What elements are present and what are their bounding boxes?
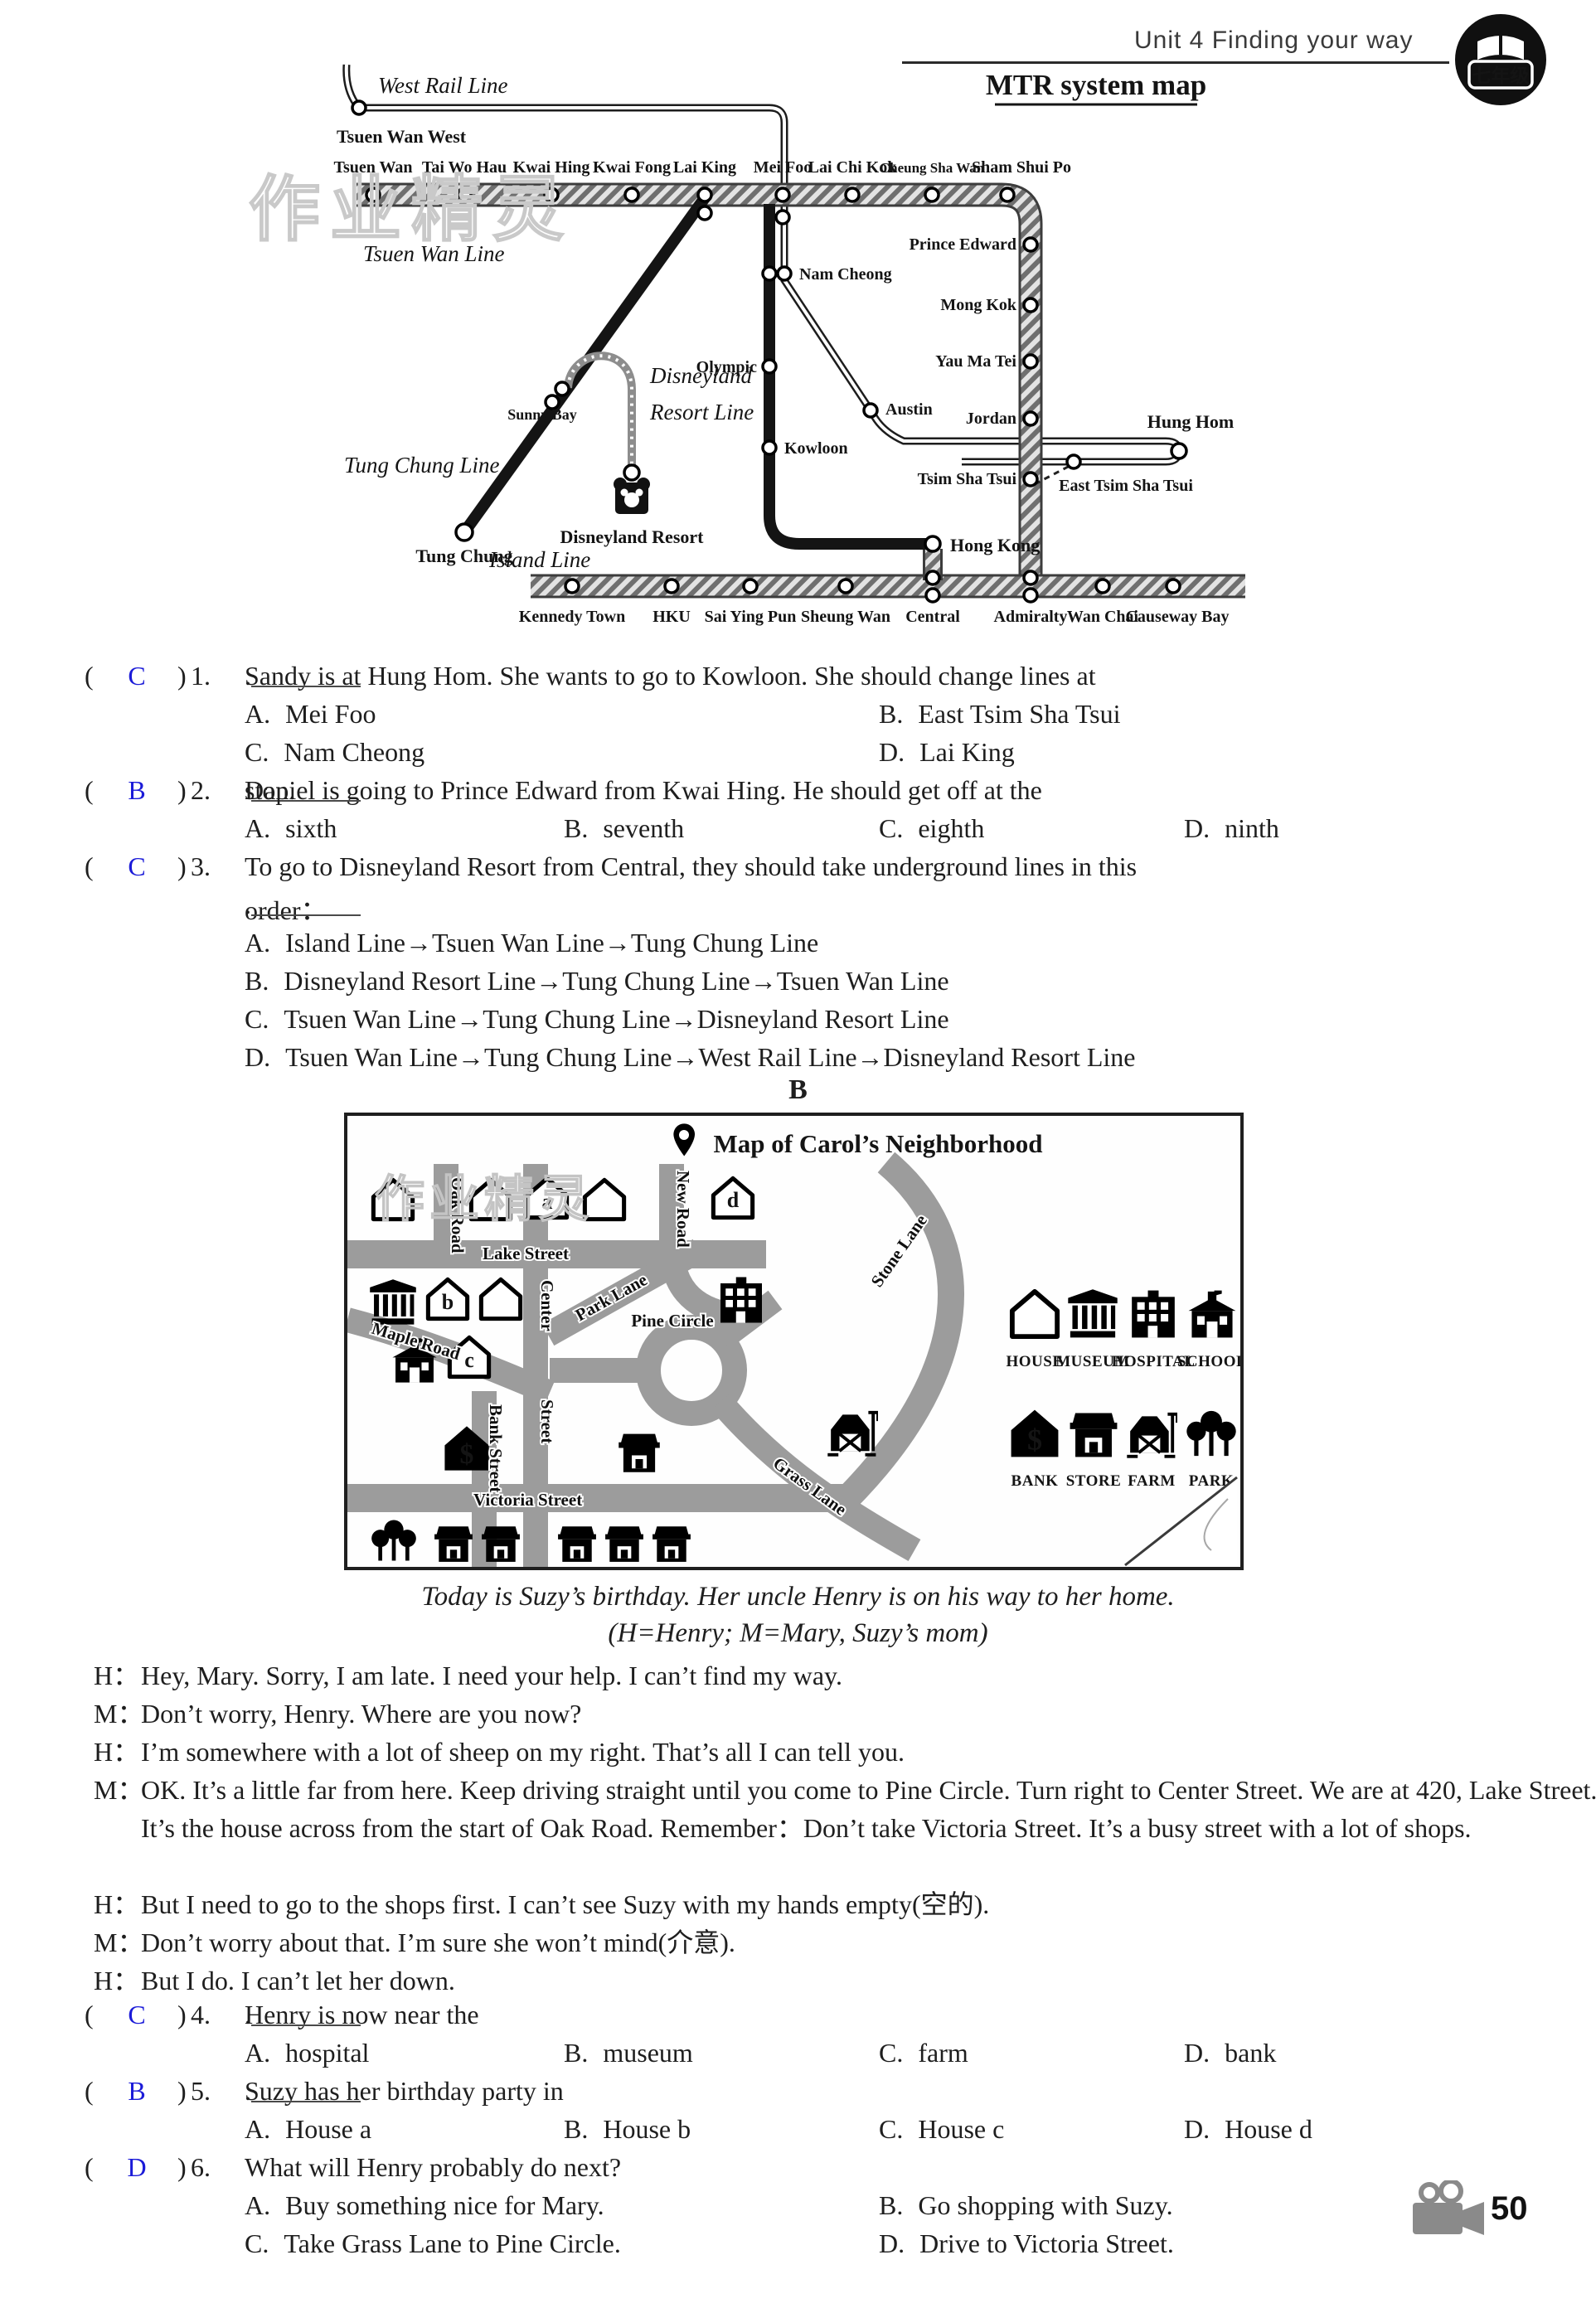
station-label: Mong Kok xyxy=(940,296,1017,314)
street-label: Victoria Street xyxy=(473,1490,582,1510)
station-label: Kwai Fong xyxy=(593,158,671,177)
station-label: Causeway Bay xyxy=(1125,608,1229,626)
street-label: Center xyxy=(537,1280,557,1331)
question-1-options: C.Nam Cheong D.Lai King xyxy=(0,737,1596,775)
house-icon xyxy=(471,1180,510,1219)
station-label: Kwai Hing xyxy=(513,158,590,177)
station-label: Kennedy Town xyxy=(519,608,625,626)
question-1-options: A.Mei Foo B.East Tsim Sha Tsui xyxy=(0,699,1596,737)
school-icon xyxy=(1189,1291,1236,1338)
answer-blank xyxy=(251,2000,361,2026)
dialogue-line: H：But I do. I can’t let her down. xyxy=(94,1961,1596,2000)
line-label-disneyland-1: Disneyland xyxy=(649,363,752,388)
station-label: Jordan xyxy=(966,410,1016,428)
line-label-tung-chung: Tung Chung Line xyxy=(344,453,500,478)
station-label: Sai Ying Pun xyxy=(705,608,797,626)
answer-4: C xyxy=(116,2000,158,2030)
question-4: ( C ) 4. Henry is now near the. xyxy=(0,2000,1596,2038)
question-4-options: A.hospital B.museum C.farm D.bank xyxy=(0,2038,1596,2076)
question-6-options: C.Take Grass Lane to Pine Circle. D.Driv… xyxy=(0,2228,1596,2267)
house-icon xyxy=(481,1279,520,1318)
farm-icon xyxy=(1127,1414,1177,1458)
dialogue-line: H：Hey, Mary. Sorry, I am late. I need yo… xyxy=(94,1656,1596,1695)
house-icon xyxy=(1012,1292,1057,1336)
answer-3: C xyxy=(116,851,158,882)
station-label: Cheung Sha Wan xyxy=(880,160,985,176)
workbook-page: Unit 4 Finding your way 七年级 作业精灵 作业精灵 xyxy=(0,0,1596,2313)
question-3-options: B.Disneyland Resort Line→Tung Chung Line… xyxy=(0,966,1596,1004)
station-label: Hong Kong xyxy=(950,535,1040,555)
station-label: Tsuen Wan West xyxy=(337,126,467,147)
museum-icon xyxy=(1068,1289,1117,1337)
svg-text:Map of Carol’s Neighborhood: Map of Carol’s Neighborhood xyxy=(714,1129,1043,1158)
answer-2: B xyxy=(116,775,158,806)
legend-label: FARM xyxy=(1128,1472,1176,1490)
page-curl xyxy=(1125,1477,1237,1565)
house-b-label: b xyxy=(442,1290,454,1314)
dialogue-line: H：But I need to go to the shops first. I… xyxy=(94,1885,1596,1923)
badge-text: 七年级 xyxy=(1472,65,1530,86)
carol-neighborhood-map: $ Map of Carol’s Neighborhood xyxy=(347,1116,1240,1567)
badge-circle xyxy=(1455,14,1546,105)
street-label: Street xyxy=(537,1399,557,1443)
answer-6: D xyxy=(116,2152,158,2183)
line-label-disneyland-2: Resort Line xyxy=(649,400,754,424)
station-label: Prince Edward xyxy=(910,235,1016,254)
answer-1: C xyxy=(116,661,158,691)
station-label: Sheung Wan xyxy=(801,608,890,626)
store-icon xyxy=(605,1526,643,1562)
mtr-system-map: MTR system map West Rail Line Tsuen Wan … xyxy=(323,58,1252,663)
station-label: Disneyland Resort xyxy=(560,526,705,547)
carol-map-title: Map of Carol’s Neighborhood xyxy=(673,1123,1042,1158)
line-label-tsuen-wan: Tsuen Wan Line xyxy=(363,241,505,266)
house-icon xyxy=(585,1180,623,1219)
street-label: Lake Street xyxy=(483,1244,569,1263)
question-2-options: A.sixth B.seventh C.eighth D.ninth xyxy=(0,813,1596,851)
legend-label: STORE xyxy=(1066,1472,1122,1490)
station-label: Central xyxy=(905,608,960,626)
station-label: Lai King xyxy=(673,158,736,177)
station-label: Tsim Sha Tsui xyxy=(918,470,1017,488)
line-label-west-rail: West Rail Line xyxy=(378,73,508,98)
legend-label: SCHOOL xyxy=(1177,1353,1240,1370)
station-label: Kowloon xyxy=(784,439,848,458)
station-label: Tsuen Wan xyxy=(333,158,412,177)
street-label: Oak Road xyxy=(448,1177,468,1253)
camera-icon xyxy=(1409,2180,1489,2238)
question-6: ( D ) 6. What will Henry probably do nex… xyxy=(0,2152,1596,2190)
question-6-options: A.Buy something nice for Mary. B.Go shop… xyxy=(0,2190,1596,2228)
station-label: Austin xyxy=(885,400,933,419)
store-icon xyxy=(619,1434,660,1472)
store-icon xyxy=(652,1526,691,1562)
station-label: Sham Shui Po xyxy=(972,158,1071,177)
station-label: Hung Hom xyxy=(1147,411,1235,432)
park-icon xyxy=(1186,1411,1235,1456)
station-label: Mei Foo xyxy=(754,158,813,177)
answer-blank xyxy=(251,890,361,916)
station-label: Sunny Bay xyxy=(507,406,577,423)
disneyland-icon xyxy=(614,478,650,514)
mtr-map-title: MTR system map xyxy=(986,69,1206,101)
house-c-label: c xyxy=(464,1348,474,1372)
passage-intro: Today is Suzy’s birthday. Her uncle Henr… xyxy=(0,1582,1596,1620)
street-label: Bank Street xyxy=(486,1404,506,1492)
dialogue-line: M：Don’t worry, Henry. Where are you now? xyxy=(94,1695,1596,1733)
legend-label: HOUSE xyxy=(1006,1353,1063,1370)
station-label: Nam Cheong xyxy=(799,265,892,284)
dialogue-line: H：I’m somewhere with a lot of sheep on m… xyxy=(94,1733,1596,1771)
answer-blank xyxy=(251,661,361,687)
map-legend: HOUSE MUSEUM HOSPITAL SCHOOL BANK STORE … xyxy=(1006,1289,1240,1490)
station-label: Admiralty xyxy=(994,608,1068,626)
store-icon xyxy=(434,1526,473,1562)
question-5: ( B ) 5. Suzy has her birthday party in. xyxy=(0,2076,1596,2114)
store-icon xyxy=(558,1526,596,1562)
answer-5: B xyxy=(116,2076,158,2107)
question-2: ( B ) 2. Daniel is going to Prince Edwar… xyxy=(0,775,1596,813)
store-icon xyxy=(1070,1413,1118,1457)
house-d-label: d xyxy=(727,1188,740,1212)
hospital-icon xyxy=(1132,1291,1175,1338)
line-label-island: Island Line xyxy=(488,547,590,572)
station-label: East Tsim Sha Tsui xyxy=(1059,477,1193,495)
street-label: Stone Lane xyxy=(866,1210,931,1290)
house-icon xyxy=(373,1180,412,1219)
answer-blank xyxy=(251,2076,361,2102)
park-icon xyxy=(371,1520,416,1561)
question-3-stem-2: order：. xyxy=(0,890,1596,928)
question-5-options: A.House a B.House b C.House c D.House d xyxy=(0,2114,1596,2152)
hospital-icon xyxy=(720,1278,762,1323)
house-a-label: a xyxy=(542,1190,553,1214)
unit-title: Unit 4 Finding your way xyxy=(1134,27,1413,55)
section-b-heading: B xyxy=(0,1074,1596,1106)
street-label: Pine Circle xyxy=(631,1311,713,1331)
dialogue-line: M：OK. It’s a little far from here. Keep … xyxy=(94,1771,1596,1847)
carol-map-box: $ Map of Carol’s Neighborhood xyxy=(344,1113,1244,1570)
passage-roles: (H=Henry; M=Mary, Suzy’s mom) xyxy=(0,1618,1596,1656)
store-icon xyxy=(482,1526,520,1562)
question-1: ( C ) 1. Sandy is at Hung Hom. She wants… xyxy=(0,661,1596,699)
dialogue-line: M：Don’t worry about that. I’m sure she w… xyxy=(94,1923,1596,1961)
question-3-options: C.Tsuen Wan Line→Tung Chung Line→Disneyl… xyxy=(0,1004,1596,1042)
station-label: Tai Wo Hau xyxy=(422,158,507,177)
page-number: 50 xyxy=(1491,2190,1528,2228)
street-label: New Road xyxy=(673,1171,693,1248)
bank-icon xyxy=(1011,1410,1059,1457)
station-label: Yau Ma Tei xyxy=(935,352,1016,371)
legend-label: BANK xyxy=(1011,1472,1059,1490)
grade-badge: 七年级 xyxy=(1453,12,1549,108)
station-label: HKU xyxy=(652,608,691,626)
question-3-options: A.Island Line→Tsuen Wan Line→Tung Chung … xyxy=(0,928,1596,966)
question-3: ( C ) 3. To go to Disneyland Resort from… xyxy=(0,851,1596,890)
farm-icon xyxy=(827,1413,878,1457)
